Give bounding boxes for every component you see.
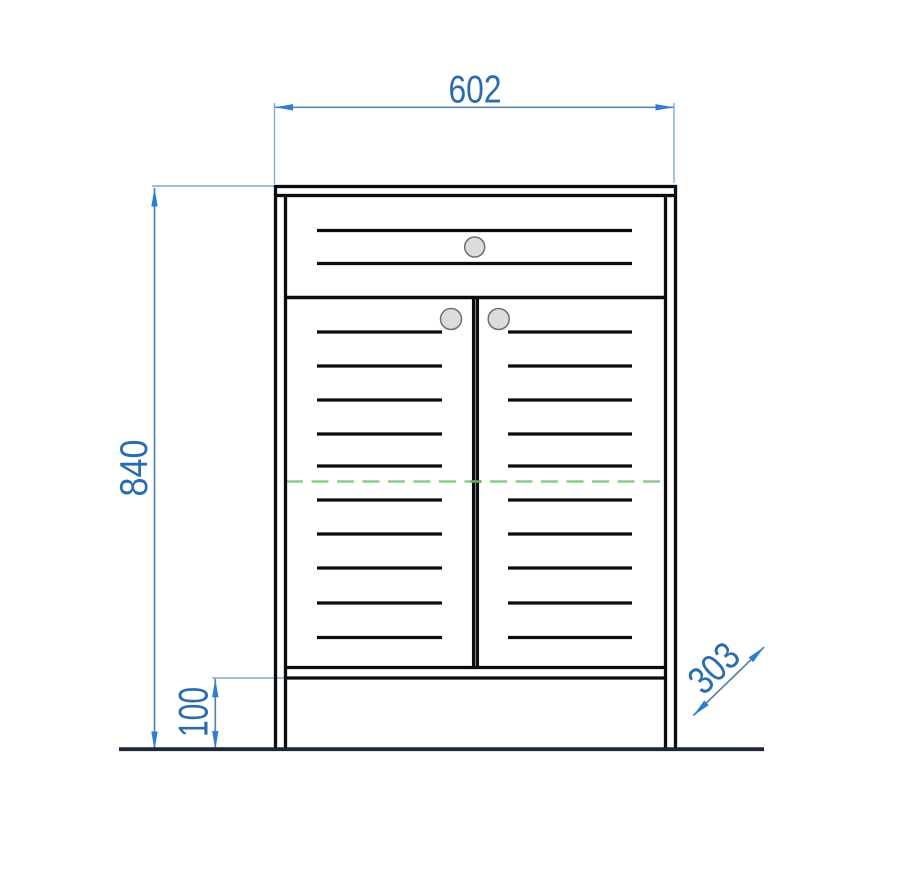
svg-text:100: 100 xyxy=(170,687,217,737)
svg-text:840: 840 xyxy=(113,440,156,497)
svg-text:602: 602 xyxy=(449,69,502,112)
